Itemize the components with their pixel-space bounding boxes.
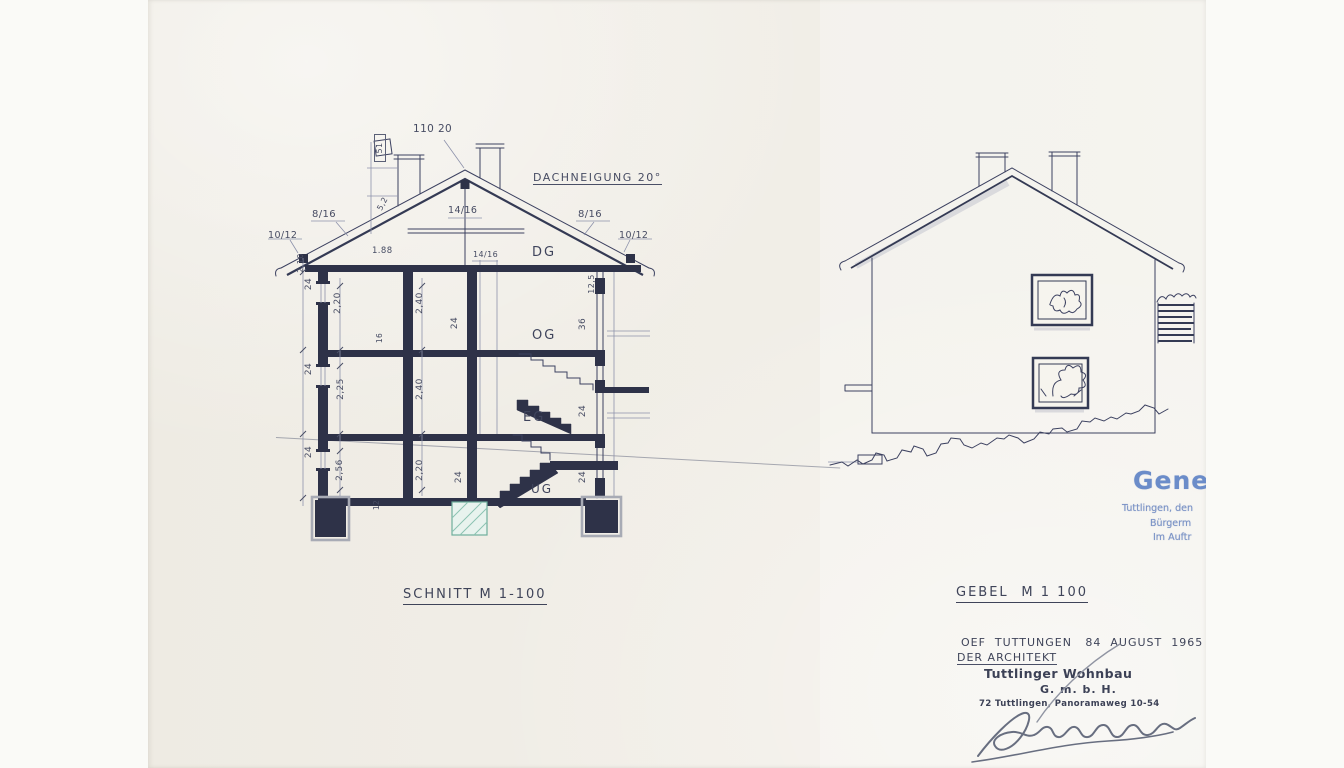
ridge-dimension: 110 20 — [413, 124, 452, 135]
eave-left-label: 10/12 — [268, 231, 297, 241]
approval-line1: Tuttlingen, den — [1122, 503, 1206, 514]
dim-lower-left: 2,56 — [335, 452, 345, 488]
gable-title: GEBEL M 1 100 — [956, 585, 1088, 603]
approval-stamp: Gene Tuttlingen, den Bürgerm Im Auftr — [1120, 466, 1206, 543]
dim-wall12: 12 — [372, 487, 382, 523]
rafter-left-label: 8/16 — [312, 210, 336, 220]
dim-wall24-4: 24 — [450, 305, 460, 341]
purlin-label: 14/16 — [473, 251, 498, 259]
storey-basement: UG — [531, 483, 553, 495]
scanned-blueprint-page: { "section": { "title": "SCHNITT M 1-100… — [0, 0, 1344, 768]
storey-upper: OG — [532, 329, 556, 342]
elevation-chimneys — [976, 152, 1080, 205]
dim-upper-mid: 2,40 — [415, 371, 425, 407]
approval-word: Gene — [1133, 466, 1206, 495]
gable-title-text: GEBEL — [956, 585, 1009, 600]
storey-ground: EG — [523, 411, 545, 424]
dim-chimney-head: 51 — [374, 134, 386, 162]
collar-beam-label: 14/16 — [448, 206, 477, 216]
dim-wall24-5: 24 — [578, 393, 588, 429]
rafter-right-label: 8/16 — [578, 210, 602, 220]
dim-attic-mid: 2,40 — [415, 285, 425, 321]
section-roof — [276, 170, 655, 276]
elevation-roof — [840, 168, 1185, 272]
dim-eave-depth: 12,5 — [587, 266, 597, 302]
lower-window — [1033, 358, 1088, 411]
side-brick-detail — [1157, 294, 1196, 343]
dim-wall24-6: 24 — [454, 459, 464, 495]
dim-wall16: 16 — [375, 320, 385, 356]
signature — [968, 696, 1248, 768]
storey-attic: DG — [532, 246, 556, 259]
dim-wall24-3: 24 — [304, 434, 314, 470]
elevation-drawing — [828, 128, 1208, 473]
dim-188: 1.88 — [372, 247, 393, 256]
dim-parapet: 2,10 — [296, 245, 306, 281]
foundation-hatch — [452, 502, 487, 535]
elevation-walls — [845, 258, 1155, 433]
dim-lower-mid: 2,20 — [415, 452, 425, 488]
roof-pitch-label: DACHNEIGUNG 20° — [533, 172, 662, 185]
section-slabs-walls — [305, 265, 649, 506]
dim-upper-left: 2,25 — [336, 371, 346, 407]
upper-window — [1032, 275, 1092, 329]
section-title: SCHNITT M 1-100 — [403, 587, 547, 605]
gable-scale-text: M 1 100 — [1021, 585, 1088, 600]
approval-line3: Im Auftr — [1153, 532, 1206, 543]
dim-attic-left: 2,20 — [333, 285, 343, 321]
dim-wall24-7: 24 — [578, 459, 588, 495]
approval-line2: Bürgerm — [1150, 518, 1206, 529]
dim-wall24-2: 24 — [304, 351, 314, 387]
dim-wall36: 36 — [578, 306, 588, 342]
section-chimneys — [367, 139, 504, 437]
ground-bushes — [828, 405, 1168, 466]
eave-right-label: 10/12 — [619, 231, 648, 241]
